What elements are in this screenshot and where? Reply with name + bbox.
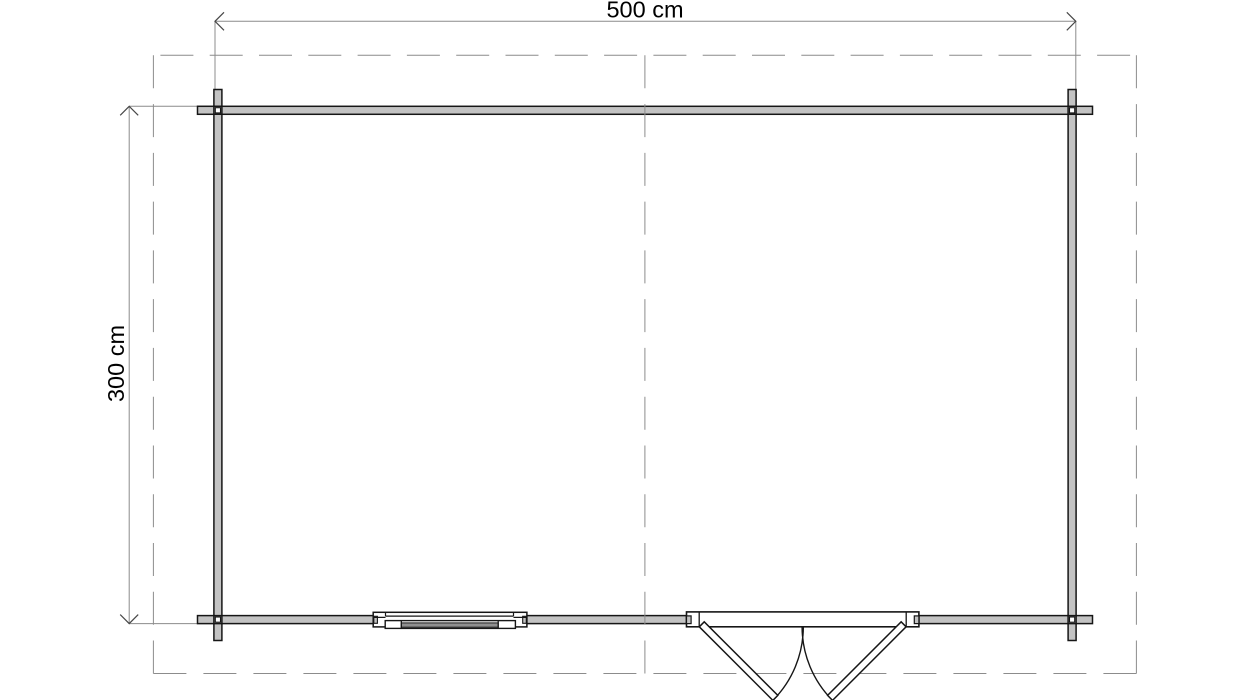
svg-text:500 cm: 500 cm — [606, 0, 683, 22]
svg-text:300 cm: 300 cm — [103, 325, 129, 402]
